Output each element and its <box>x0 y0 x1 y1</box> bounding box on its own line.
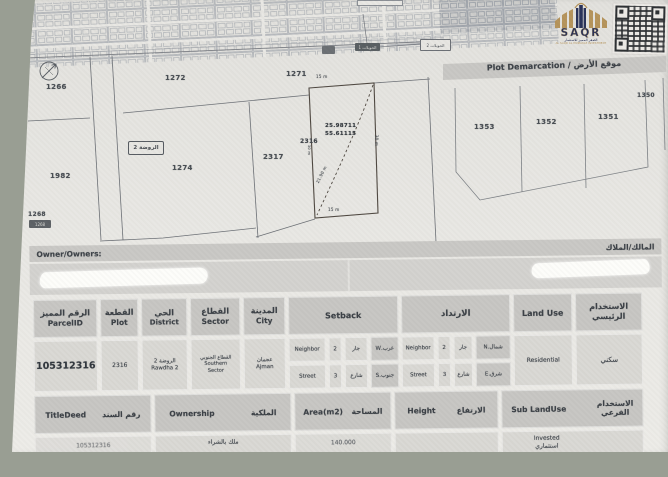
scanned-land-document: { "logo": { "name": "SAQR", "tagline_ar"… <box>0 0 668 452</box>
header-land-use-en: Land Use <box>513 293 572 332</box>
setback-e-dir: شرق.E <box>476 362 511 386</box>
setback-w-value: 2 <box>328 337 341 361</box>
header-sector: القطاع Sector <box>190 297 240 336</box>
setback-e-type: شارع <box>454 363 473 387</box>
header-area: Area(m2) المساحة <box>294 392 391 431</box>
setback-n-dir: شمال.N <box>475 335 510 359</box>
setback-e-value: 3 <box>438 363 451 387</box>
value-district: الروضة 2 Rawdha 2 <box>141 339 188 391</box>
header-plot: القطعة Plot <box>100 299 138 337</box>
setback-n-side: Neighbor <box>401 336 434 360</box>
setback-s-side: Street <box>289 364 326 388</box>
value-sector: القطاع الجنوبي Southern Sector <box>190 338 241 390</box>
header-title-deed: TitleDeed رقم السند <box>34 395 151 434</box>
redacted-owner-name-left <box>40 267 208 288</box>
value-area: 140.000 <box>295 433 392 474</box>
value-city: عجمان Ajman <box>243 338 286 390</box>
header-parcel-id: الرقم المميز ParcelID <box>33 299 97 338</box>
owner-row-divider <box>348 260 350 291</box>
setback-s-type: شارع <box>345 364 368 388</box>
value-ownership: ملك بالشراء <box>155 434 292 476</box>
setback-n-value: 2 <box>437 336 450 360</box>
setback-w-dir: غرب.W <box>370 337 398 361</box>
value-land-use-ar: سكني <box>575 334 643 386</box>
value-title-deed: 105312316 <box>35 436 152 477</box>
owner-values-row <box>30 256 662 295</box>
setback-w-type: جار <box>344 337 367 361</box>
setback-e-side: Street <box>402 363 435 387</box>
setback-w-side: Neighbor <box>288 337 325 361</box>
setback-n-type: جار <box>453 336 472 360</box>
header-sub-land-use: Sub LandUse الاستخدام الفرعي <box>501 389 643 429</box>
header-land-use-ar: الاستخدام الرئيسي <box>575 293 642 332</box>
value-land-use-en: Residential <box>513 334 573 386</box>
value-sub-land-use: Invested استثماري <box>502 430 644 472</box>
header-ownership: Ownership الملكية <box>154 393 291 433</box>
setback-s-value: 3 <box>329 364 342 388</box>
redacted-owner-name-right <box>531 259 649 279</box>
header-setback-en: Setback <box>288 296 398 335</box>
document-paper: SAQR الصقر المميز للاستثمار AL SAQR AL M… <box>0 0 668 452</box>
header-city: المدينة City <box>243 297 285 336</box>
owner-label-en: Owner/Owners: <box>36 249 101 259</box>
header-height: Height الارتفاع <box>394 390 498 429</box>
header-setback-ar: الارتداد <box>401 294 510 333</box>
header-district: الحي District <box>141 298 187 337</box>
owner-label-ar: المالك/الملاك <box>606 242 655 252</box>
value-parcel-id: 105312316 <box>34 340 99 392</box>
setback-s-dir: جنوب.S <box>371 364 399 388</box>
value-plot: 2316 <box>100 340 139 391</box>
